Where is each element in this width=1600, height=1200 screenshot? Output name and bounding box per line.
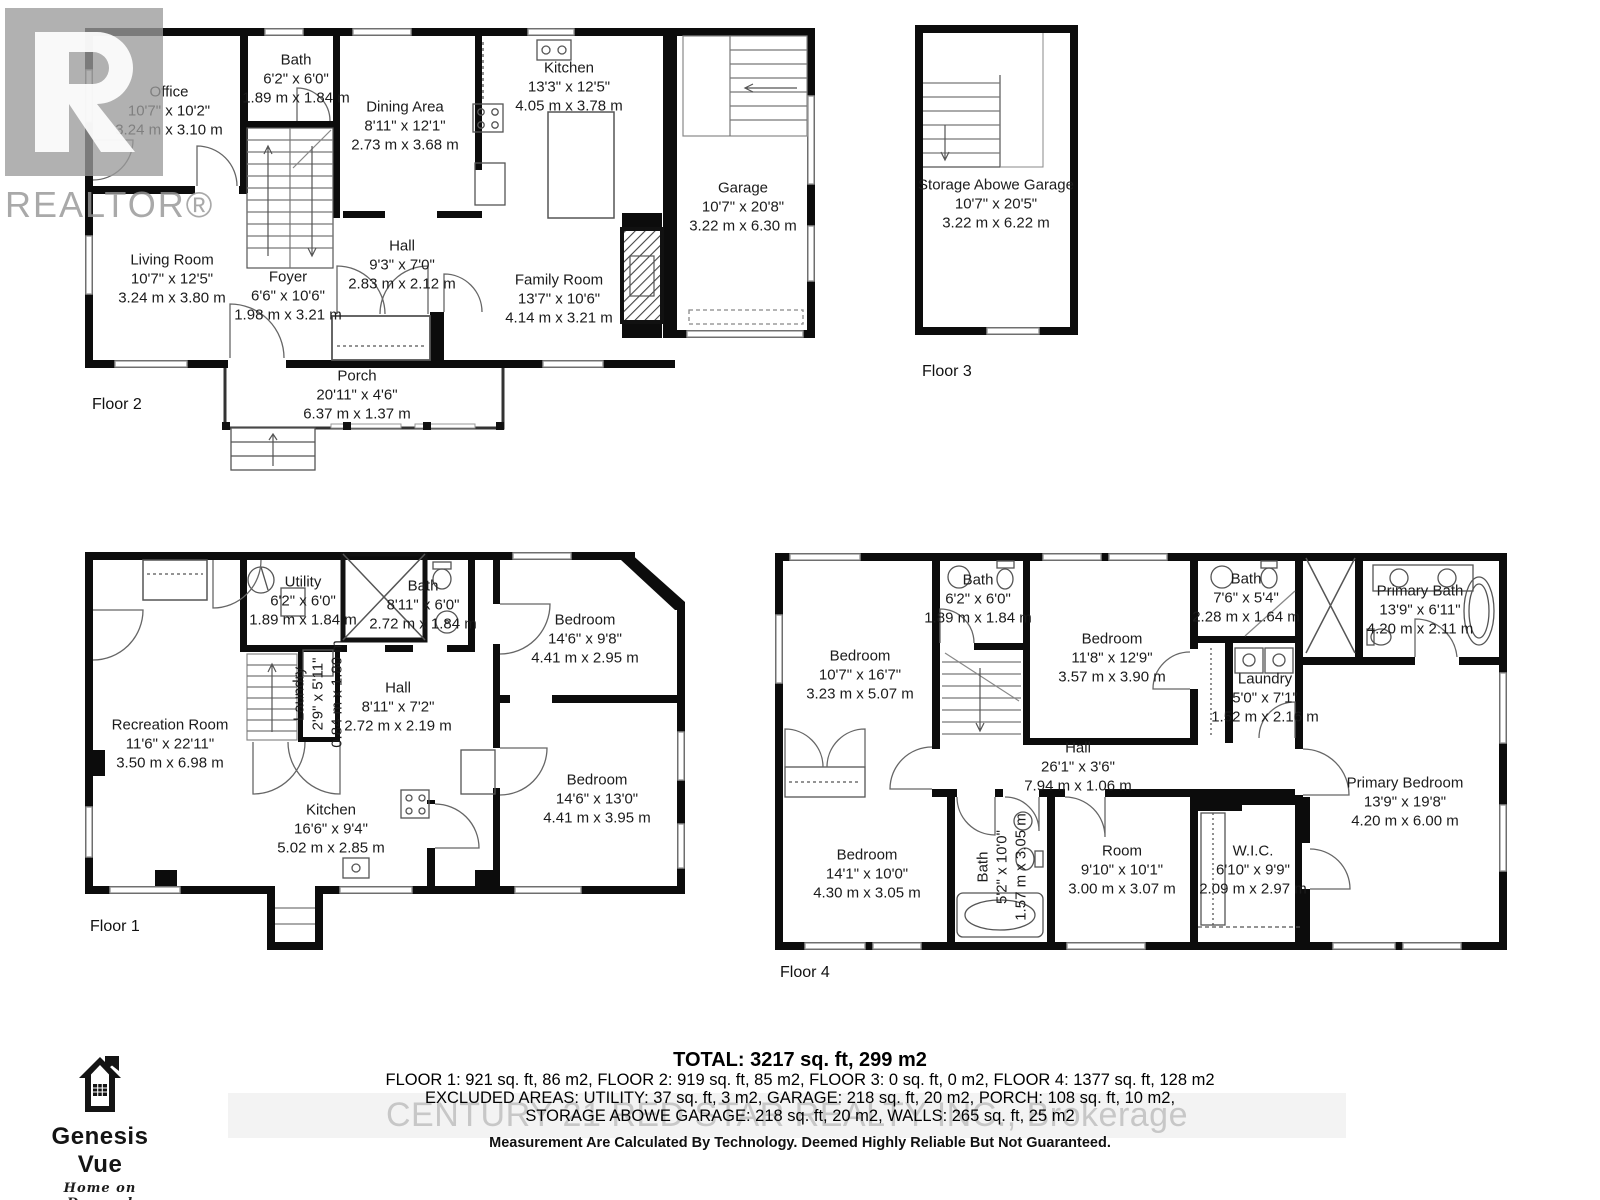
room-name: Foyer xyxy=(234,269,342,288)
floor-3-plan: Storage Abowe Garage10'7" x 20'5"3.22 m … xyxy=(915,25,1078,335)
room-dims-m: 7.94 m x 1.06 m xyxy=(1024,777,1132,796)
room-label-primary-bath: Primary Bath13'9" x 6'11"4.20 m x 2.11 m xyxy=(1367,583,1473,640)
room-name: Bedroom xyxy=(543,772,651,791)
floor-1-plan: Utility6'2" x 6'0"1.89 m x 1.84 m Bath8'… xyxy=(85,552,685,952)
room-label-kitchen: Kitchen13'3" x 12'5"4.05 m x 3.78 m xyxy=(515,60,623,117)
room-label-garage: Garage10'7" x 20'8"3.22 m x 6.30 m xyxy=(689,180,797,237)
room-name: Recreation Room xyxy=(112,717,229,736)
room-dims-ft: 6'10" x 9'9" xyxy=(1199,862,1307,881)
room-dims-ft: 6'2" x 6'0" xyxy=(249,593,357,612)
room-label-bedroom-3: Bedroom14'1" x 10'0"4.30 m x 3.05 m xyxy=(813,847,921,904)
excluded-areas-1: EXCLUDED AREAS: UTILITY: 37 sq. ft, 3 m2… xyxy=(10,1089,1590,1107)
room-dims-ft: 2'9" x 5'11" xyxy=(310,640,329,748)
genesis-vue-tagline: Home on Demand xyxy=(38,1181,162,1200)
room-dims-ft: 9'3" x 7'0" xyxy=(348,257,456,276)
room-name: Dining Area xyxy=(351,99,459,118)
room-name: Bath xyxy=(369,578,477,597)
room-dims-m: 5.02 m x 2.85 m xyxy=(277,839,385,858)
room-dims-ft: 10'7" x 20'8" xyxy=(689,199,797,218)
room-name: Bath xyxy=(1192,571,1300,590)
room-dims-ft: 26'1" x 3'6" xyxy=(1024,759,1132,778)
floor3-stairs xyxy=(923,33,1043,167)
room-dims-ft: 5'0" x 7'1" xyxy=(1211,690,1319,709)
room-label-bedroom-1: Bedroom10'7" x 16'7"3.23 m x 5.07 m xyxy=(806,648,914,705)
room-dims-ft: 9'10" x 10'1" xyxy=(1068,862,1176,881)
room-dims-ft: 7'6" x 5'4" xyxy=(1192,590,1300,609)
room-label-bath: Bath8'11" x 6'0"2.72 m x 1.84 m xyxy=(369,578,477,635)
room-dims-ft: 11'8" x 12'9" xyxy=(1058,650,1166,669)
room-label-porch: Porch20'11" x 4'6"6.37 m x 1.37 m xyxy=(303,368,411,425)
room-dims-ft: 13'3" x 12'5" xyxy=(515,79,623,98)
area-summary: TOTAL: 3217 sq. ft, 299 m2 FLOOR 1: 921 … xyxy=(10,1049,1590,1125)
room-dims-ft: 16'6" x 9'4" xyxy=(277,821,385,840)
room-name: Family Room xyxy=(505,272,613,291)
room-name: Garage xyxy=(689,180,797,199)
room-dims-m: 2.83 m x 2.12 m xyxy=(348,275,456,294)
room-dims-ft: 11'6" x 22'11" xyxy=(112,736,229,755)
room-dims-m: 2.72 m x 2.19 m xyxy=(344,717,452,736)
floor4-shower-x xyxy=(1306,558,1355,653)
room-dims-m: 3.22 m x 6.30 m xyxy=(689,217,797,236)
room-name: Bedroom xyxy=(531,612,639,631)
floor-2-label: Floor 2 xyxy=(92,396,142,414)
room-label-bath-2: Bath7'6" x 5'4"2.28 m x 1.64 m xyxy=(1192,571,1300,628)
room-dims-ft: 14'6" x 13'0" xyxy=(543,791,651,810)
room-dims-ft: 20'11" x 4'6" xyxy=(303,387,411,406)
room-dims-ft: 13'9" x 19'8" xyxy=(1347,794,1464,813)
room-name: Bedroom xyxy=(806,648,914,667)
room-label-storage-above-garage: Storage Abowe Garage10'7" x 20'5"3.22 m … xyxy=(918,177,1074,234)
floor2-closet xyxy=(332,316,430,360)
room-label-utility: Utility6'2" x 6'0"1.89 m x 1.84 m xyxy=(249,574,357,631)
room-dims-m: 4.20 m x 6.00 m xyxy=(1347,812,1464,831)
room-name: Bedroom xyxy=(1058,631,1166,650)
room-dims-m: 4.41 m x 2.95 m xyxy=(531,649,639,668)
room-label-recreation-room: Recreation Room11'6" x 22'11"3.50 m x 6.… xyxy=(112,717,229,774)
room-dims-m: 2.72 m x 1.84 m xyxy=(369,615,477,634)
room-dims-m: 2.73 m x 3.68 m xyxy=(351,136,459,155)
room-dims-m: 1.89 m x 1.84 m xyxy=(242,89,350,108)
room-dims-ft: 6'2" x 6'0" xyxy=(924,591,1032,610)
room-label-bath-3: Bath5'2" x 10'0"1.57 m x 3.05 m xyxy=(975,813,1032,921)
room-label-primary-bedroom: Primary Bedroom13'9" x 19'8"4.20 m x 6.0… xyxy=(1347,775,1464,832)
floor2-garage-stairs xyxy=(683,36,807,136)
room-label-hall: Hall26'1" x 3'6"7.94 m x 1.06 m xyxy=(1024,740,1132,797)
floor4-stairs xyxy=(942,653,1021,734)
room-dims-ft: 10'7" x 12'5" xyxy=(118,271,226,290)
room-label-room: Room9'10" x 10'1"3.00 m x 3.07 m xyxy=(1068,843,1176,900)
room-dims-m: 4.05 m x 3.78 m xyxy=(515,97,623,116)
realtor-watermark: REALTOR® xyxy=(5,8,214,226)
realtor-watermark-text: REALTOR® xyxy=(5,184,214,226)
room-dims-ft: 8'11" x 6'0" xyxy=(369,597,477,616)
floor-4-plan: Bedroom10'7" x 16'7"3.23 m x 5.07 m Bath… xyxy=(775,553,1507,950)
house-icon xyxy=(78,1056,122,1114)
room-label-dining-area: Dining Area8'11" x 12'1"2.73 m x 3.68 m xyxy=(351,99,459,156)
room-dims-ft: 13'9" x 6'11" xyxy=(1367,602,1473,621)
room-name: Bath xyxy=(924,572,1032,591)
room-name: Living Room xyxy=(118,252,226,271)
room-name: Bath xyxy=(975,813,994,921)
room-dims-m: 3.22 m x 6.22 m xyxy=(918,214,1074,233)
room-dims-m: 4.30 m x 3.05 m xyxy=(813,884,921,903)
floor-3-label: Floor 3 xyxy=(922,363,972,381)
fireplace xyxy=(622,229,662,322)
room-label-bath: Bath6'2" x 6'0"1.89 m x 1.84 m xyxy=(242,52,350,109)
room-name: Hall xyxy=(1024,740,1132,759)
room-label-bedroom-2: Bedroom14'6" x 13'0"4.41 m x 3.95 m xyxy=(543,772,651,829)
room-dims-m: 3.24 m x 3.80 m xyxy=(118,289,226,308)
room-name: Laundry xyxy=(1211,671,1319,690)
excluded-areas-2: STORAGE ABOWE GARAGE: 218 sq. ft, 20 m2,… xyxy=(10,1107,1590,1125)
room-dims-ft: 6'6" x 10'6" xyxy=(234,288,342,307)
room-dims-m: 3.00 m x 3.07 m xyxy=(1068,880,1176,899)
room-dims-m: 4.41 m x 3.95 m xyxy=(543,809,651,828)
floor2-stairs xyxy=(247,128,333,268)
room-dims-m: 1.52 m x 2.16 m xyxy=(1211,708,1319,727)
room-name: Room xyxy=(1068,843,1176,862)
floor-1-label: Floor 1 xyxy=(90,918,140,936)
room-label-foyer: Foyer6'6" x 10'6"1.98 m x 3.21 m xyxy=(234,269,342,326)
room-name: Primary Bedroom xyxy=(1347,775,1464,794)
room-name: Kitchen xyxy=(515,60,623,79)
room-dims-m: 3.57 m x 3.90 m xyxy=(1058,668,1166,687)
room-name: W.I.C. xyxy=(1199,843,1307,862)
room-label-laundry: Laundry5'0" x 7'1"1.52 m x 2.16 m xyxy=(1211,671,1319,728)
floors-areas: FLOOR 1: 921 sq. ft, 86 m2, FLOOR 2: 919… xyxy=(10,1071,1590,1089)
room-label-hall: Hall8'11" x 7'2"2.72 m x 2.19 m xyxy=(344,680,452,737)
room-dims-ft: 6'2" x 6'0" xyxy=(242,71,350,90)
room-dims-m: 2.09 m x 2.97 m xyxy=(1199,880,1307,899)
room-dims-m: 3.50 m x 6.98 m xyxy=(112,754,229,773)
room-label-family-room: Family Room13'7" x 10'6"4.14 m x 3.21 m xyxy=(505,272,613,329)
room-dims-m: 1.89 m x 1.84 m xyxy=(249,611,357,630)
room-dims-ft: 10'7" x 16'7" xyxy=(806,667,914,686)
room-label-bedroom-1: Bedroom14'6" x 9'8"4.41 m x 2.95 m xyxy=(531,612,639,669)
room-dims-m: 3.23 m x 5.07 m xyxy=(806,685,914,704)
room-name: Hall xyxy=(348,238,456,257)
room-dims-ft: 13'7" x 10'6" xyxy=(505,291,613,310)
room-dims-ft: 14'1" x 10'0" xyxy=(813,866,921,885)
room-name: Porch xyxy=(303,368,411,387)
room-dims-m: 6.37 m x 1.37 m xyxy=(303,405,411,424)
room-dims-m: 1.57 m x 3.05 m xyxy=(1012,813,1031,921)
genesis-vue-name: Genesis Vue xyxy=(38,1123,162,1179)
room-dims-ft: 14'6" x 9'8" xyxy=(531,631,639,650)
room-dims-m: 1.89 m x 1.84 m xyxy=(924,609,1032,628)
floorplan-canvas: Office10'7" x 10'2"3.24 m x 3.10 m Bath6… xyxy=(0,0,1600,1200)
room-label-laundry: Laundry2'9" x 5'11"0.84 m x 1.80 m xyxy=(291,640,348,748)
room-name: Kitchen xyxy=(277,802,385,821)
room-label-wic: W.I.C.6'10" x 9'9"2.09 m x 2.97 m xyxy=(1199,843,1307,900)
room-label-bedroom-2: Bedroom11'8" x 12'9"3.57 m x 3.90 m xyxy=(1058,631,1166,688)
floor-4-label: Floor 4 xyxy=(780,964,830,982)
room-label-hall: Hall9'3" x 7'0"2.83 m x 2.12 m xyxy=(348,238,456,295)
total-area: TOTAL: 3217 sq. ft, 299 m2 xyxy=(10,1049,1590,1071)
room-name: Primary Bath xyxy=(1367,583,1473,602)
room-dims-m: 1.98 m x 3.21 m xyxy=(234,306,342,325)
room-dims-m: 4.14 m x 3.21 m xyxy=(505,309,613,328)
room-dims-ft: 10'7" x 20'5" xyxy=(918,196,1074,215)
floor3-window xyxy=(987,328,1039,334)
room-name: Laundry xyxy=(291,640,310,748)
realtor-block-r-logo xyxy=(5,8,163,176)
room-label-living-room: Living Room10'7" x 12'5"3.24 m x 3.80 m xyxy=(118,252,226,309)
floor1-closet xyxy=(143,560,207,600)
room-name: Storage Abowe Garage xyxy=(918,177,1074,196)
room-dims-ft: 5'2" x 10'0" xyxy=(994,813,1013,921)
room-dims-ft: 8'11" x 7'2" xyxy=(344,699,452,718)
room-dims-m: 2.28 m x 1.64 m xyxy=(1192,608,1300,627)
room-name: Bath xyxy=(242,52,350,71)
room-label-bath-1: Bath6'2" x 6'0"1.89 m x 1.84 m xyxy=(924,572,1032,629)
room-name: Bedroom xyxy=(813,847,921,866)
room-label-kitchen: Kitchen16'6" x 9'4"5.02 m x 2.85 m xyxy=(277,802,385,859)
genesis-vue-logo: Genesis Vue Home on Demand xyxy=(38,1056,162,1200)
disclaimer: Measurement Are Calculated By Technology… xyxy=(10,1135,1590,1151)
room-name: Hall xyxy=(344,680,452,699)
room-name: Utility xyxy=(249,574,357,593)
room-dims-ft: 8'11" x 12'1" xyxy=(351,118,459,137)
room-dims-m: 4.20 m x 2.11 m xyxy=(1367,620,1473,639)
